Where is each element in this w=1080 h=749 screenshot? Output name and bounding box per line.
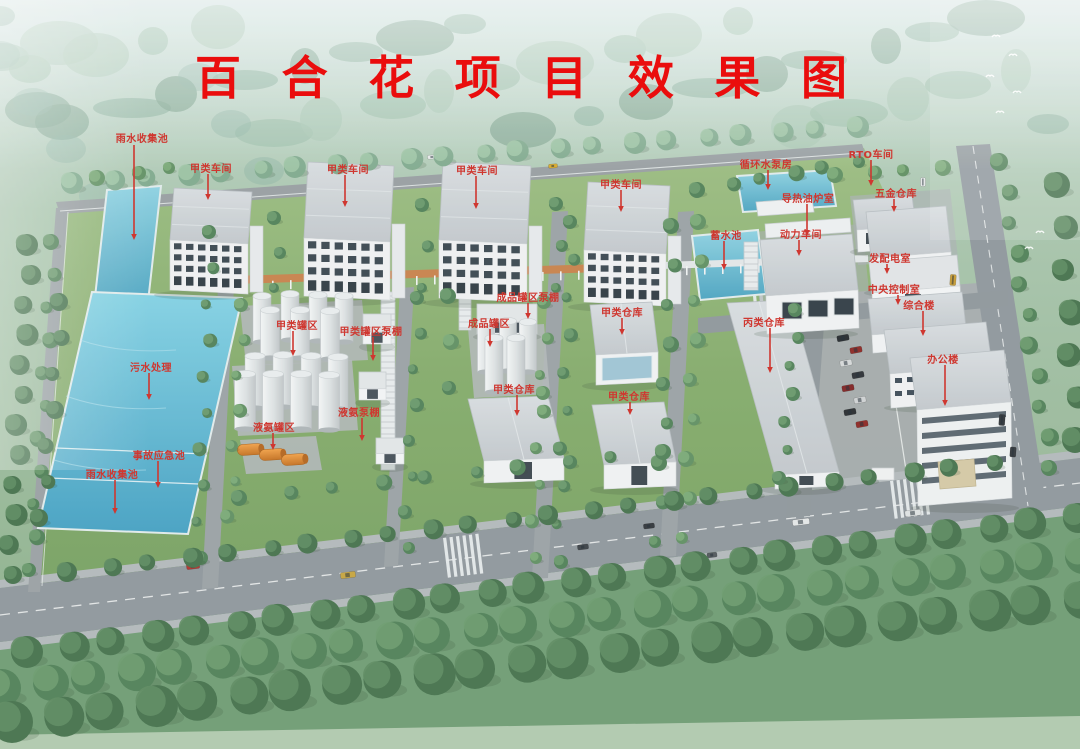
site-rendering: 百合花项目效果图 雨水收集池甲类车间甲类车间甲类车间甲类车间循环水泵房RTO车间… (0, 0, 1080, 749)
scene-canvas (0, 0, 1080, 749)
atmosphere-overlay (0, 0, 1080, 749)
